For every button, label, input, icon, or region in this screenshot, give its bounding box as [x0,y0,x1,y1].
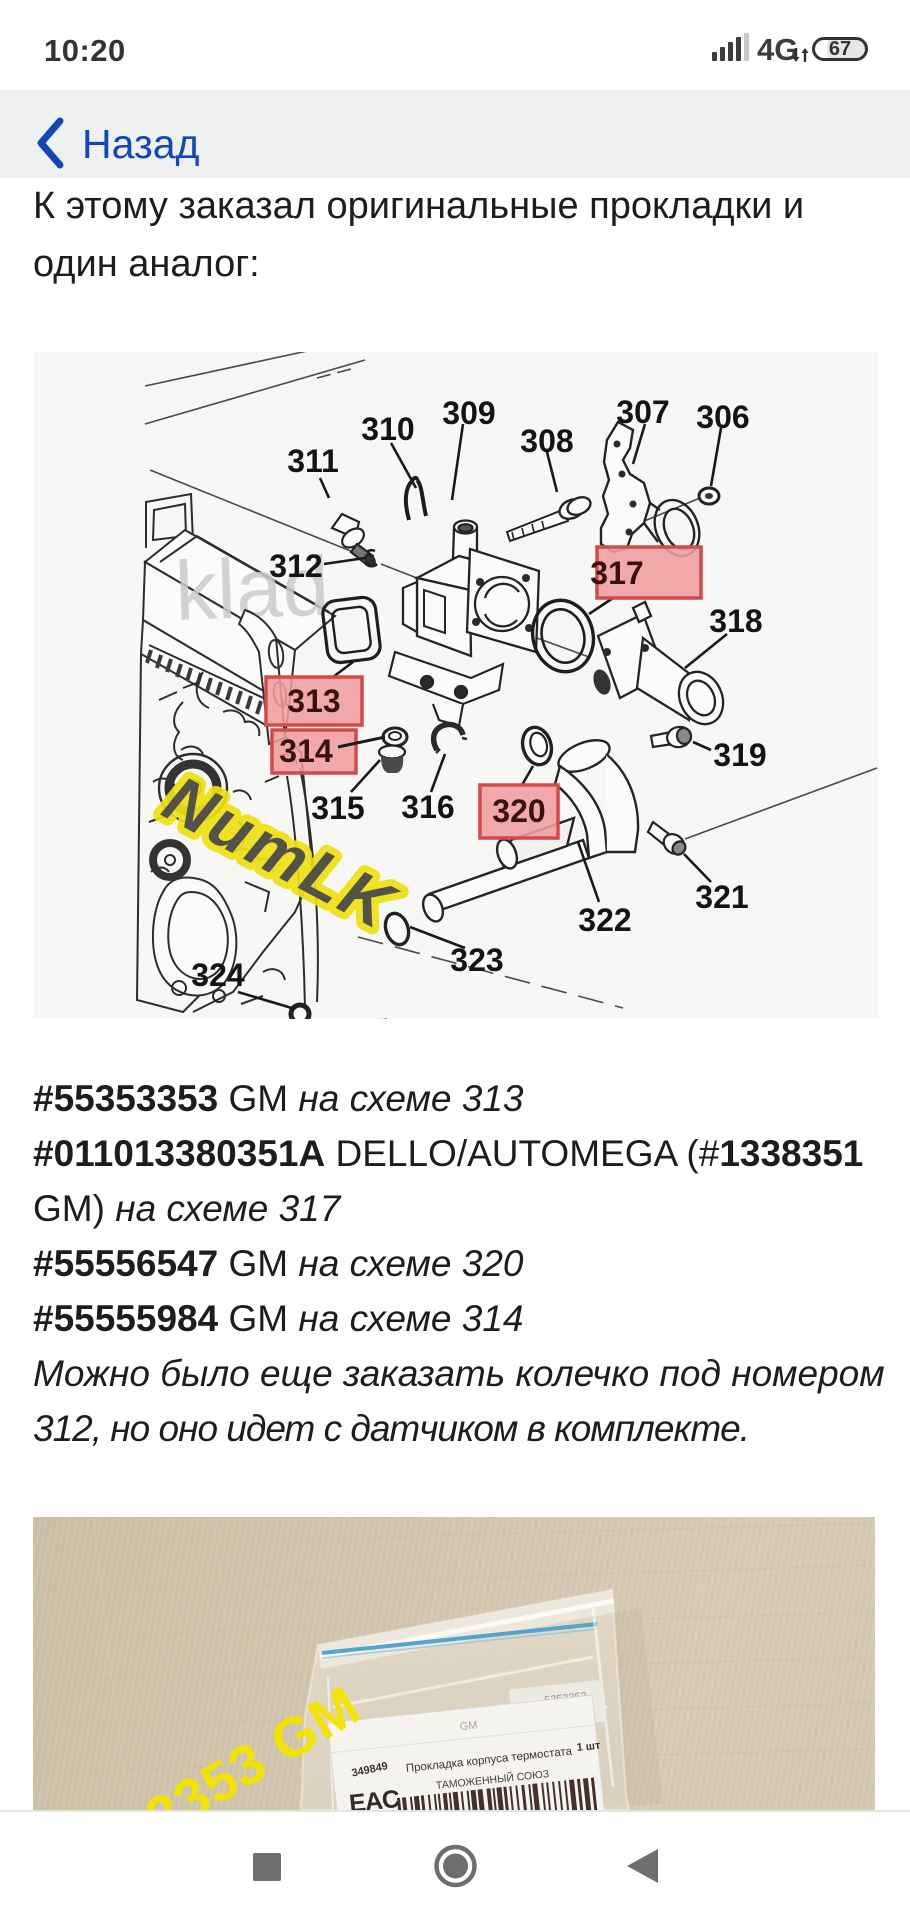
svg-text:310: 310 [361,411,414,447]
svg-text:321: 321 [695,879,748,915]
svg-text:318: 318 [709,603,762,639]
svg-text:312: 312 [269,548,322,584]
svg-text:307: 307 [616,394,669,430]
svg-text:4G: 4G [757,32,798,66]
svg-text:324: 324 [191,957,245,993]
svg-text:EAC: EAC [348,1785,401,1810]
svg-text:316: 316 [401,789,454,825]
svg-text:315: 315 [311,790,364,826]
svg-text:GM: GM [459,1719,478,1733]
svg-text:314: 314 [279,733,333,769]
svg-text:319: 319 [713,737,766,773]
svg-text:311: 311 [287,443,339,479]
svg-text:317: 317 [590,555,643,591]
svg-text:320: 320 [492,793,545,829]
svg-text:309: 309 [442,395,495,431]
svg-text:322: 322 [578,902,631,938]
svg-text:313: 313 [287,683,340,719]
svg-text:306: 306 [696,399,749,435]
svg-text:1 шт: 1 шт [576,1740,601,1754]
svg-text:308: 308 [520,423,573,459]
svg-text:323: 323 [450,942,503,978]
